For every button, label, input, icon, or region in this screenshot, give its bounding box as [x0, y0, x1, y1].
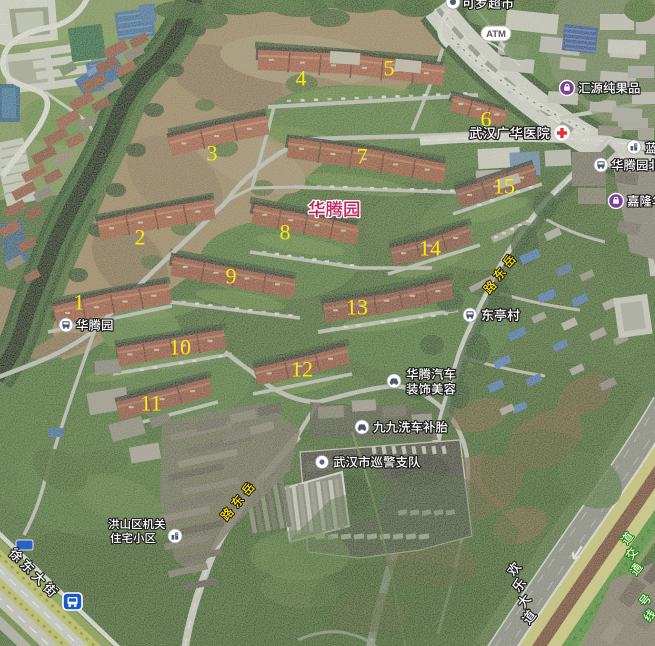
svg-text:14: 14 — [419, 236, 441, 261]
svg-text:7: 7 — [357, 144, 368, 169]
svg-text:9: 9 — [226, 264, 237, 289]
svg-text:5: 5 — [384, 56, 395, 81]
svg-text:12: 12 — [291, 357, 313, 382]
svg-text:1: 1 — [74, 290, 85, 315]
svg-text:10: 10 — [169, 335, 191, 360]
svg-text:15: 15 — [493, 174, 515, 199]
svg-text:6: 6 — [481, 107, 492, 132]
svg-text:4: 4 — [296, 66, 307, 91]
svg-text:11: 11 — [140, 391, 161, 416]
svg-text:3: 3 — [207, 141, 218, 166]
svg-text:13: 13 — [346, 295, 368, 320]
svg-text:2: 2 — [135, 225, 146, 250]
svg-text:ATM: ATM — [486, 29, 506, 40]
svg-text:8: 8 — [280, 220, 291, 245]
